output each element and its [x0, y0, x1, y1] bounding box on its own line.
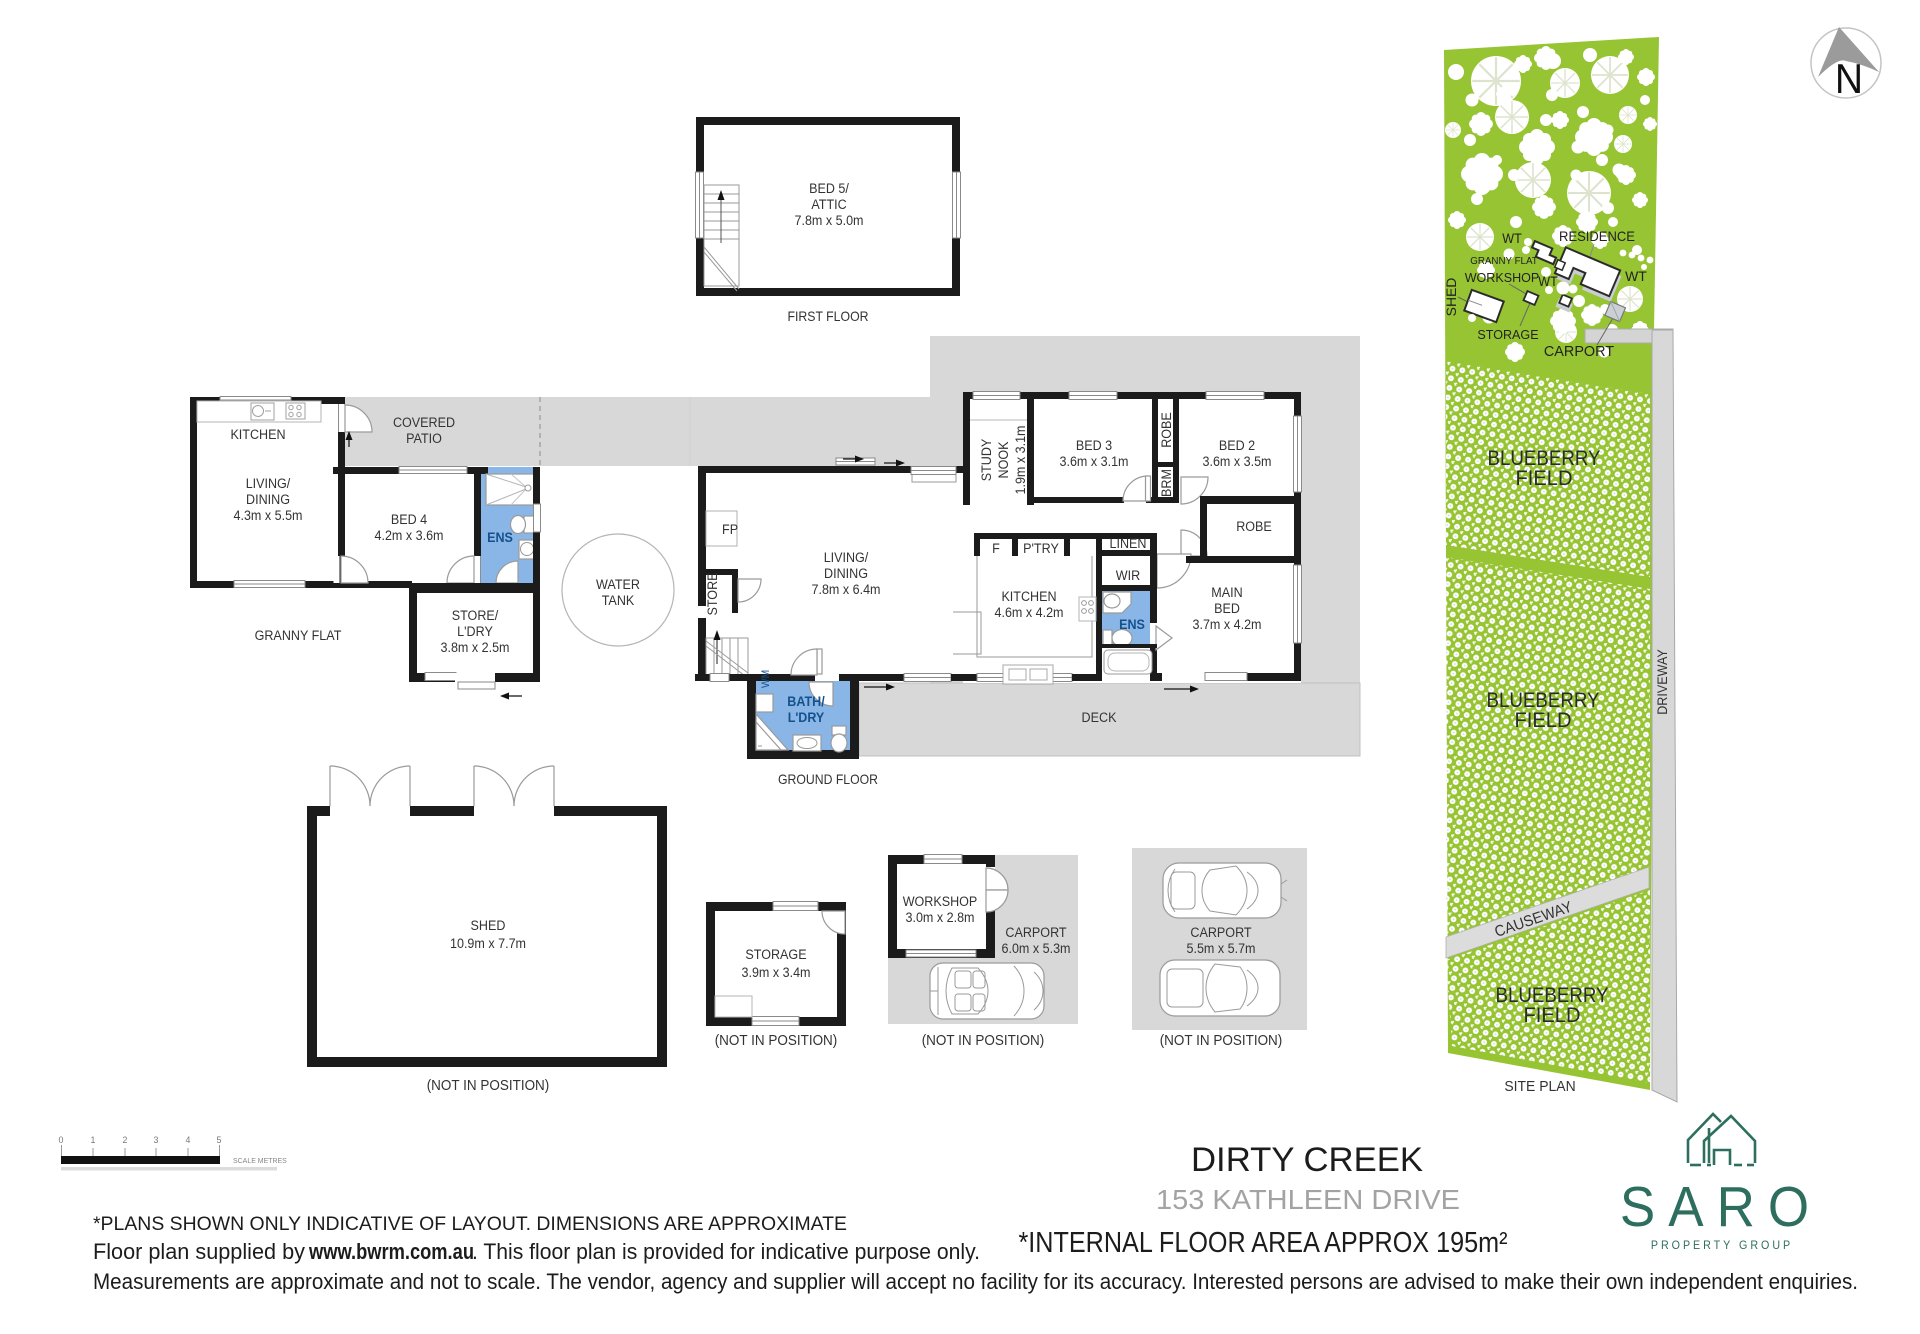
svg-text:BED: BED	[1214, 601, 1240, 616]
svg-text:6.0m x 5.3m: 6.0m x 5.3m	[1002, 941, 1071, 956]
svg-text:3.6m x 3.5m: 3.6m x 3.5m	[1203, 454, 1272, 469]
svg-text:KITCHEN: KITCHEN	[230, 427, 285, 442]
svg-text:CARPORT: CARPORT	[1190, 925, 1251, 940]
svg-text:DIRTY CREEK: DIRTY CREEK	[1191, 1141, 1423, 1179]
svg-text:SHED: SHED	[471, 918, 506, 933]
svg-text:3: 3	[154, 1135, 159, 1146]
svg-text:0: 0	[59, 1135, 64, 1146]
svg-text:DINING: DINING	[246, 492, 290, 507]
svg-text:WT: WT	[1625, 269, 1647, 284]
svg-text:*INTERNAL FLOOR AREA APPROX 1: *INTERNAL FLOOR AREA APPROX 195m²	[1019, 1227, 1508, 1259]
svg-text:RESIDENCE: RESIDENCE	[1559, 228, 1635, 244]
svg-text:PROPERTY GROUP: PROPERTY GROUP	[1651, 1240, 1793, 1252]
svg-text:BED 2: BED 2	[1219, 438, 1255, 453]
svg-text:ENS: ENS	[1119, 617, 1145, 632]
svg-text:. This floor plan is provided: . This floor plan is provided for indica…	[472, 1239, 980, 1264]
svg-text:4: 4	[186, 1135, 191, 1146]
svg-text:LIVING/: LIVING/	[246, 476, 291, 491]
svg-text:153 KATHLEEN DRIVE: 153 KATHLEEN DRIVE	[1156, 1184, 1460, 1215]
svg-text:3.0m x 2.8m: 3.0m x 2.8m	[906, 910, 975, 925]
svg-text:BED 5/: BED 5/	[809, 181, 849, 196]
svg-text:ROBE: ROBE	[1159, 412, 1174, 448]
svg-text:CARPORT: CARPORT	[1005, 925, 1066, 940]
svg-text:DRIVEWAY: DRIVEWAY	[1655, 649, 1670, 715]
svg-text:GRANNY FLAT: GRANNY FLAT	[255, 628, 342, 643]
svg-text:(NOT IN POSITION): (NOT IN POSITION)	[1160, 1033, 1283, 1049]
svg-text:ENS: ENS	[487, 530, 513, 545]
svg-text:LINEN: LINEN	[1110, 536, 1147, 551]
svg-text:BATH/: BATH/	[787, 694, 825, 709]
svg-text:FIELD: FIELD	[1515, 709, 1572, 732]
svg-text:1: 1	[91, 1135, 96, 1146]
svg-text:ATTIC: ATTIC	[811, 197, 847, 212]
svg-text:3.9m x 3.4m: 3.9m x 3.4m	[742, 965, 811, 980]
svg-text:STORAGE: STORAGE	[745, 947, 806, 962]
svg-text:WT: WT	[1502, 231, 1522, 246]
svg-text:DECK: DECK	[1082, 710, 1117, 725]
svg-text:GRANNY FLAT: GRANNY FLAT	[1470, 255, 1538, 267]
svg-text:5: 5	[217, 1135, 222, 1146]
svg-text:GROUND FLOOR: GROUND FLOOR	[778, 771, 878, 787]
svg-text:NOOK: NOOK	[996, 442, 1011, 479]
svg-text:3.6m x 3.1m: 3.6m x 3.1m	[1060, 454, 1129, 469]
svg-text:WATER: WATER	[596, 577, 640, 592]
svg-text:STORE/: STORE/	[452, 608, 499, 623]
svg-text:STORE: STORE	[705, 573, 720, 616]
svg-text:10.9m x 7.7m: 10.9m x 7.7m	[450, 936, 526, 951]
svg-text:FP: FP	[722, 522, 738, 537]
svg-text:TANK: TANK	[602, 593, 635, 608]
svg-text:DINING: DINING	[824, 566, 868, 581]
svg-text:*PLANS SHOWN ONLY INDICATIVE O: *PLANS SHOWN ONLY INDICATIVE OF LAYOUT. …	[93, 1214, 847, 1235]
svg-text:4.6m x 4.2m: 4.6m x 4.2m	[995, 605, 1064, 620]
svg-text:(NOT IN POSITION): (NOT IN POSITION)	[922, 1033, 1045, 1049]
svg-text:Floor plan supplied by: Floor plan supplied by	[93, 1239, 305, 1264]
svg-text:4.2m x 3.6m: 4.2m x 3.6m	[375, 528, 444, 543]
svg-text:(NOT IN POSITION): (NOT IN POSITION)	[427, 1078, 550, 1094]
svg-text:L'DRY: L'DRY	[788, 710, 825, 725]
svg-text:4.3m x 5.5m: 4.3m x 5.5m	[234, 508, 303, 523]
svg-text:Measurements are approximate a: Measurements are approximate and not to …	[93, 1269, 1858, 1294]
svg-text:FIELD: FIELD	[1516, 467, 1573, 490]
svg-text:WORKSHOP: WORKSHOP	[1465, 271, 1540, 285]
svg-text:STUDY: STUDY	[979, 439, 994, 482]
svg-text:MAIN: MAIN	[1211, 585, 1242, 600]
svg-text:F: F	[992, 541, 1000, 556]
svg-text:7.8m x 5.0m: 7.8m x 5.0m	[795, 213, 864, 228]
svg-text:BRM: BRM	[1159, 469, 1174, 497]
svg-text:WT: WT	[1538, 274, 1558, 289]
svg-text:WIR: WIR	[1116, 568, 1141, 583]
svg-text:SHED: SHED	[1444, 277, 1459, 316]
svg-text:STORAGE: STORAGE	[1477, 328, 1538, 342]
svg-text:1.9m x 3.1m: 1.9m x 3.1m	[1013, 426, 1028, 495]
svg-text:SARO: SARO	[1620, 1175, 1822, 1239]
svg-text:(NOT IN POSITION): (NOT IN POSITION)	[715, 1033, 838, 1049]
svg-text:KITCHEN: KITCHEN	[1001, 589, 1056, 604]
svg-text:3.7m x 4.2m: 3.7m x 4.2m	[1193, 617, 1262, 632]
svg-text:FIRST FLOOR: FIRST FLOOR	[788, 308, 869, 324]
svg-text:SCALE METRES: SCALE METRES	[233, 1156, 287, 1165]
svg-text:7.8m x 6.4m: 7.8m x 6.4m	[812, 582, 881, 597]
svg-text:P'TRY: P'TRY	[1023, 541, 1059, 556]
svg-text:BED 4: BED 4	[391, 512, 428, 527]
svg-text:N: N	[1835, 55, 1863, 102]
svg-text:ROBE: ROBE	[1236, 519, 1272, 534]
svg-text:5.5m x 5.7m: 5.5m x 5.7m	[1187, 941, 1256, 956]
svg-text:www.bwrm.com.au: www.bwrm.com.au	[308, 1239, 474, 1264]
svg-text:BED 3: BED 3	[1076, 438, 1112, 453]
svg-text:2: 2	[123, 1135, 128, 1146]
svg-text:COVERED: COVERED	[393, 415, 455, 430]
svg-text:PATIO: PATIO	[406, 431, 442, 446]
svg-text:3.8m x 2.5m: 3.8m x 2.5m	[441, 640, 510, 655]
svg-text:CARPORT: CARPORT	[1544, 344, 1614, 360]
svg-text:WM: WM	[760, 670, 772, 688]
svg-text:L'DRY: L'DRY	[457, 624, 493, 639]
svg-text:FIELD: FIELD	[1524, 1004, 1581, 1027]
svg-text:LIVING/: LIVING/	[824, 550, 869, 565]
svg-text:SITE PLAN: SITE PLAN	[1504, 1078, 1575, 1095]
svg-text:WORKSHOP: WORKSHOP	[903, 894, 978, 909]
